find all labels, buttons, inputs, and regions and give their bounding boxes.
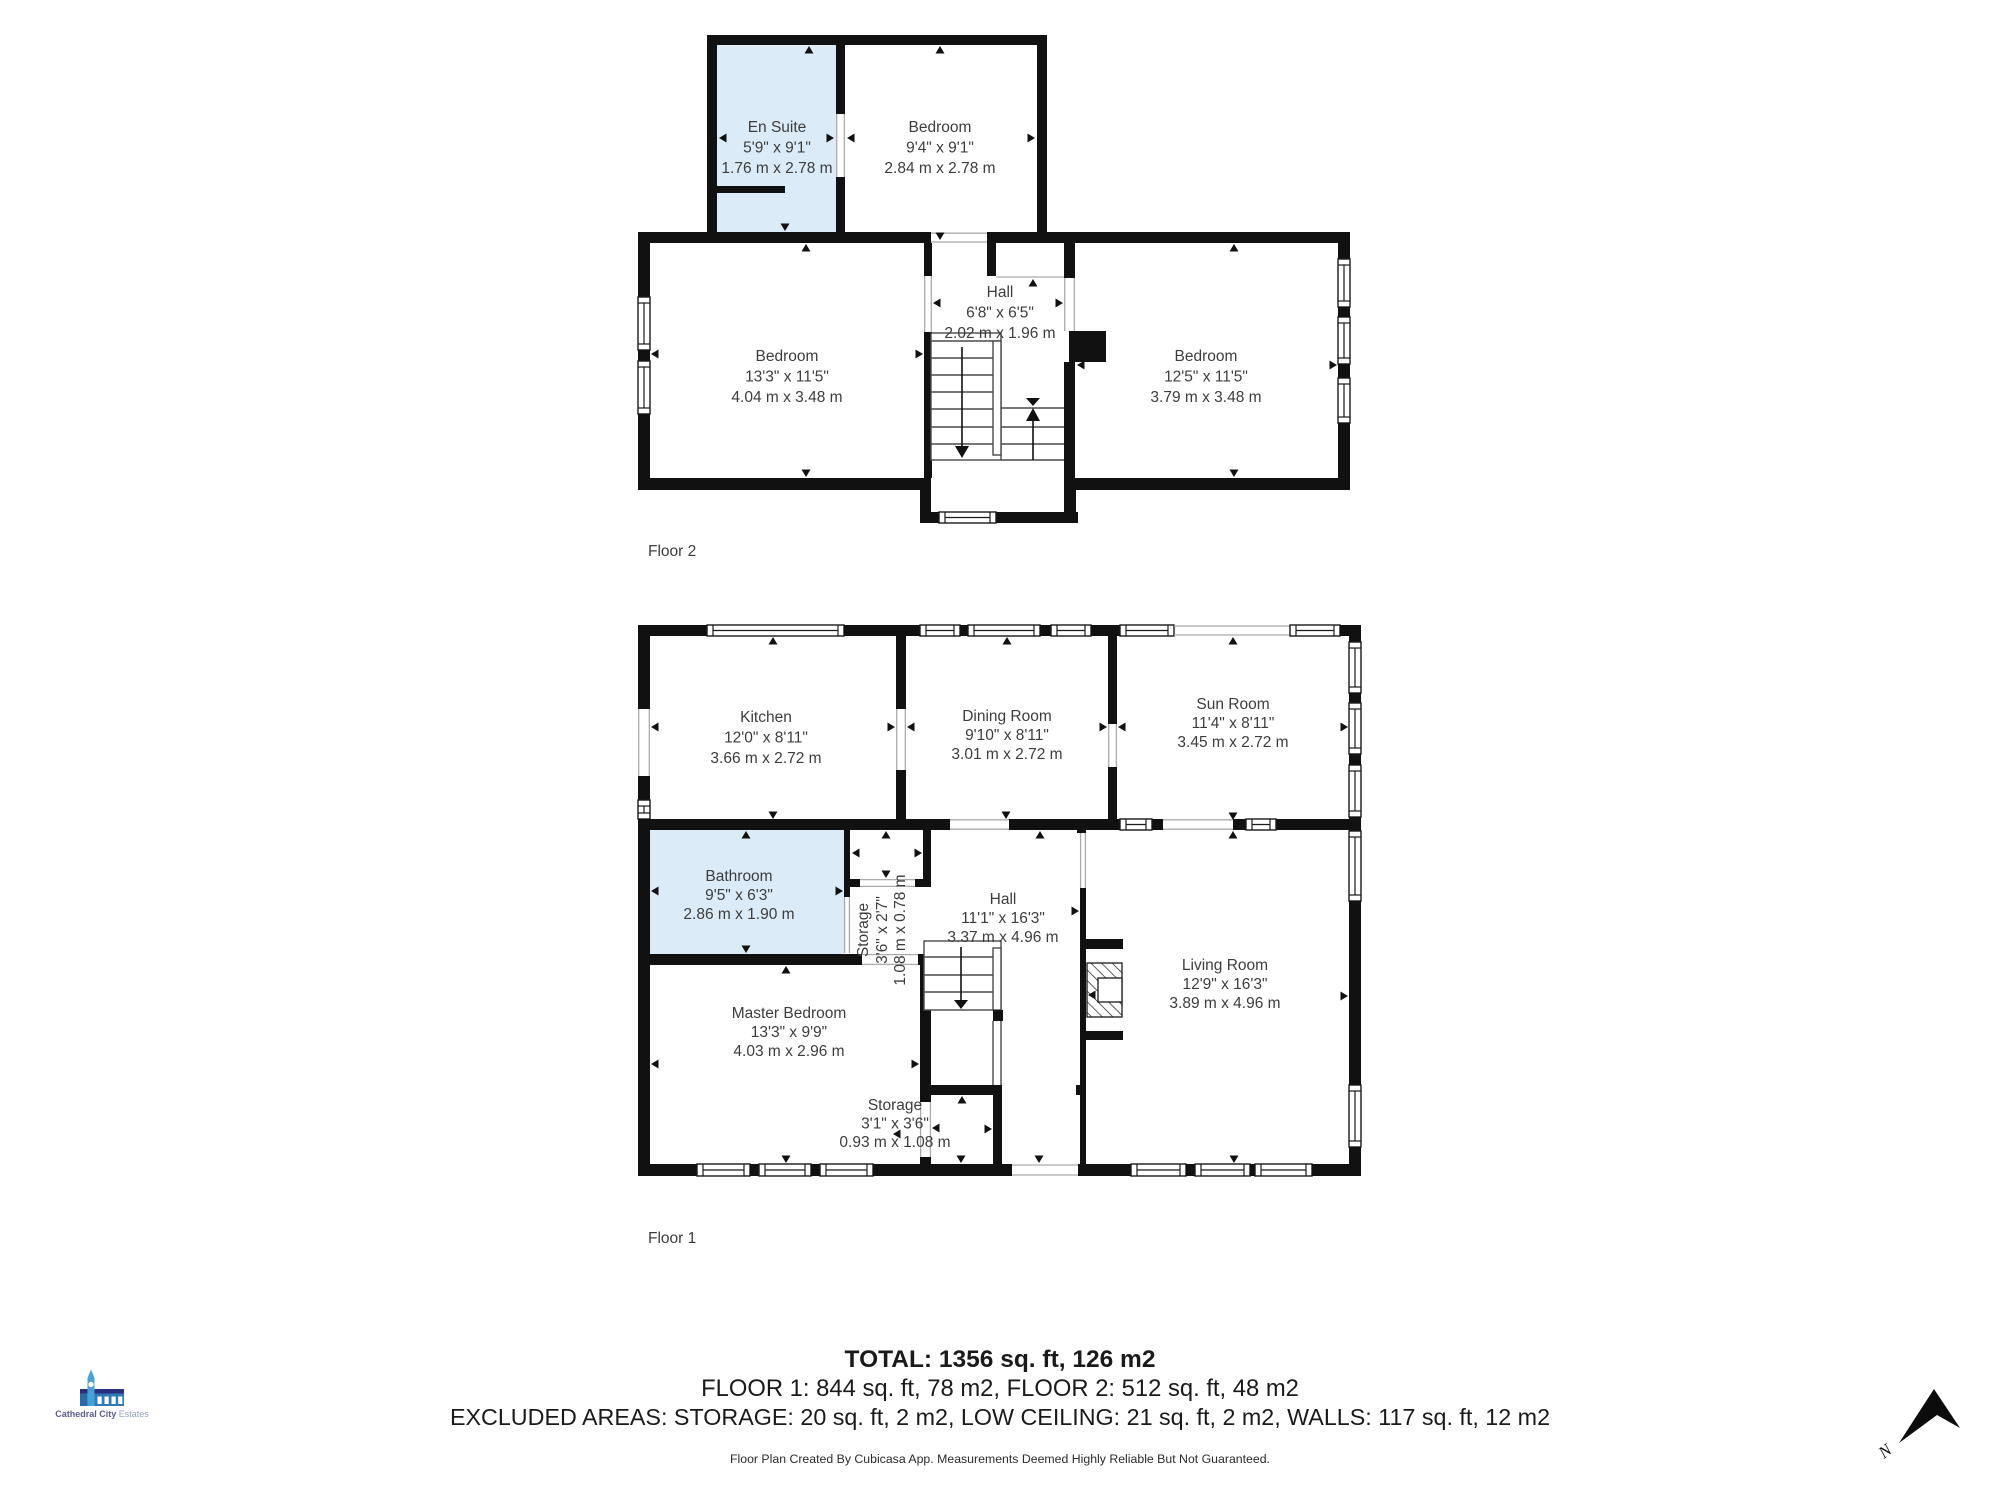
svg-text:Bedroom: Bedroom [756, 348, 819, 365]
svg-text:EXCLUDED AREAS: STORAGE: 20 sq: EXCLUDED AREAS: STORAGE: 20 sq. ft, 2 m2… [450, 1404, 1550, 1430]
svg-text:9'5" x 6'3": 9'5" x 6'3" [705, 887, 773, 904]
svg-text:3.89 m x 4.96 m: 3.89 m x 4.96 m [1169, 995, 1280, 1012]
svg-text:6'8" x 6'5": 6'8" x 6'5" [966, 305, 1034, 322]
svg-text:5'9" x 9'1": 5'9" x 9'1" [743, 140, 811, 157]
svg-text:2.84 m x 2.78 m: 2.84 m x 2.78 m [884, 160, 995, 177]
svg-text:13'3" x 11'5": 13'3" x 11'5" [745, 369, 829, 386]
svg-text:Hall: Hall [990, 891, 1017, 908]
svg-text:2.86 m x 1.90 m: 2.86 m x 1.90 m [683, 906, 794, 923]
svg-text:1.08 m x 0.78 m: 1.08 m x 0.78 m [892, 874, 909, 985]
svg-text:1.76 m x 2.78 m: 1.76 m x 2.78 m [721, 160, 832, 177]
svg-text:Living Room: Living Room [1182, 957, 1268, 974]
svg-text:Floor Plan Created By Cubicasa: Floor Plan Created By Cubicasa App. Meas… [730, 1452, 1270, 1466]
svg-text:3.79 m x 3.48 m: 3.79 m x 3.48 m [1150, 389, 1261, 406]
svg-text:Storage: Storage [868, 1097, 922, 1114]
svg-text:3.37 m x 4.96 m: 3.37 m x 4.96 m [947, 929, 1058, 946]
svg-text:Bathroom: Bathroom [705, 868, 772, 885]
svg-text:2.02 m x 1.96 m: 2.02 m x 1.96 m [944, 325, 1055, 342]
svg-text:11'4" x 8'11": 11'4" x 8'11" [1192, 715, 1275, 732]
svg-text:FLOOR 1: 844 sq. ft, 78 m2, FL: FLOOR 1: 844 sq. ft, 78 m2, FLOOR 2: 512… [701, 1375, 1299, 1402]
svg-text:Bedroom: Bedroom [1175, 348, 1238, 365]
svg-text:9'4" x 9'1": 9'4" x 9'1" [906, 140, 974, 157]
svg-text:3.66 m x 2.72 m: 3.66 m x 2.72 m [710, 750, 821, 767]
svg-text:3'6" x 2'7": 3'6" x 2'7" [874, 896, 891, 964]
svg-text:Cathedral City Estates: Cathedral City Estates [55, 1409, 149, 1419]
svg-text:0.93 m x 1.08 m: 0.93 m x 1.08 m [839, 1134, 950, 1151]
svg-text:Floor 2: Floor 2 [648, 543, 696, 560]
svg-text:Bedroom: Bedroom [909, 119, 972, 136]
svg-text:11'1" x 16'3": 11'1" x 16'3" [961, 910, 1045, 927]
svg-text:TOTAL: 1356 sq. ft, 126 m2: TOTAL: 1356 sq. ft, 126 m2 [845, 1346, 1156, 1373]
svg-text:12'9" x 16'3": 12'9" x 16'3" [1182, 976, 1267, 993]
svg-text:Kitchen: Kitchen [740, 709, 792, 726]
svg-text:12'5" x 11'5": 12'5" x 11'5" [1164, 369, 1248, 386]
svg-text:13'3" x 9'9": 13'3" x 9'9" [751, 1024, 827, 1041]
svg-text:Storage: Storage [855, 903, 872, 957]
svg-text:4.04 m x 3.48 m: 4.04 m x 3.48 m [731, 389, 842, 406]
svg-text:Sun Room: Sun Room [1196, 696, 1269, 713]
svg-text:3'1" x 3'6": 3'1" x 3'6" [861, 1116, 929, 1133]
svg-text:3.45 m x 2.72 m: 3.45 m x 2.72 m [1177, 734, 1288, 751]
svg-text:Hall: Hall [987, 284, 1014, 301]
svg-text:Master Bedroom: Master Bedroom [732, 1005, 847, 1022]
svg-text:En Suite: En Suite [748, 119, 807, 136]
svg-text:Dining Room: Dining Room [962, 708, 1052, 725]
svg-text:4.03 m x 2.96 m: 4.03 m x 2.96 m [733, 1043, 844, 1060]
svg-text:Floor 1: Floor 1 [648, 1230, 696, 1247]
svg-text:9'10" x 8'11": 9'10" x 8'11" [965, 727, 1049, 744]
svg-text:12'0" x 8'11": 12'0" x 8'11" [724, 730, 808, 747]
svg-text:3.01 m x 2.72 m: 3.01 m x 2.72 m [951, 746, 1062, 763]
